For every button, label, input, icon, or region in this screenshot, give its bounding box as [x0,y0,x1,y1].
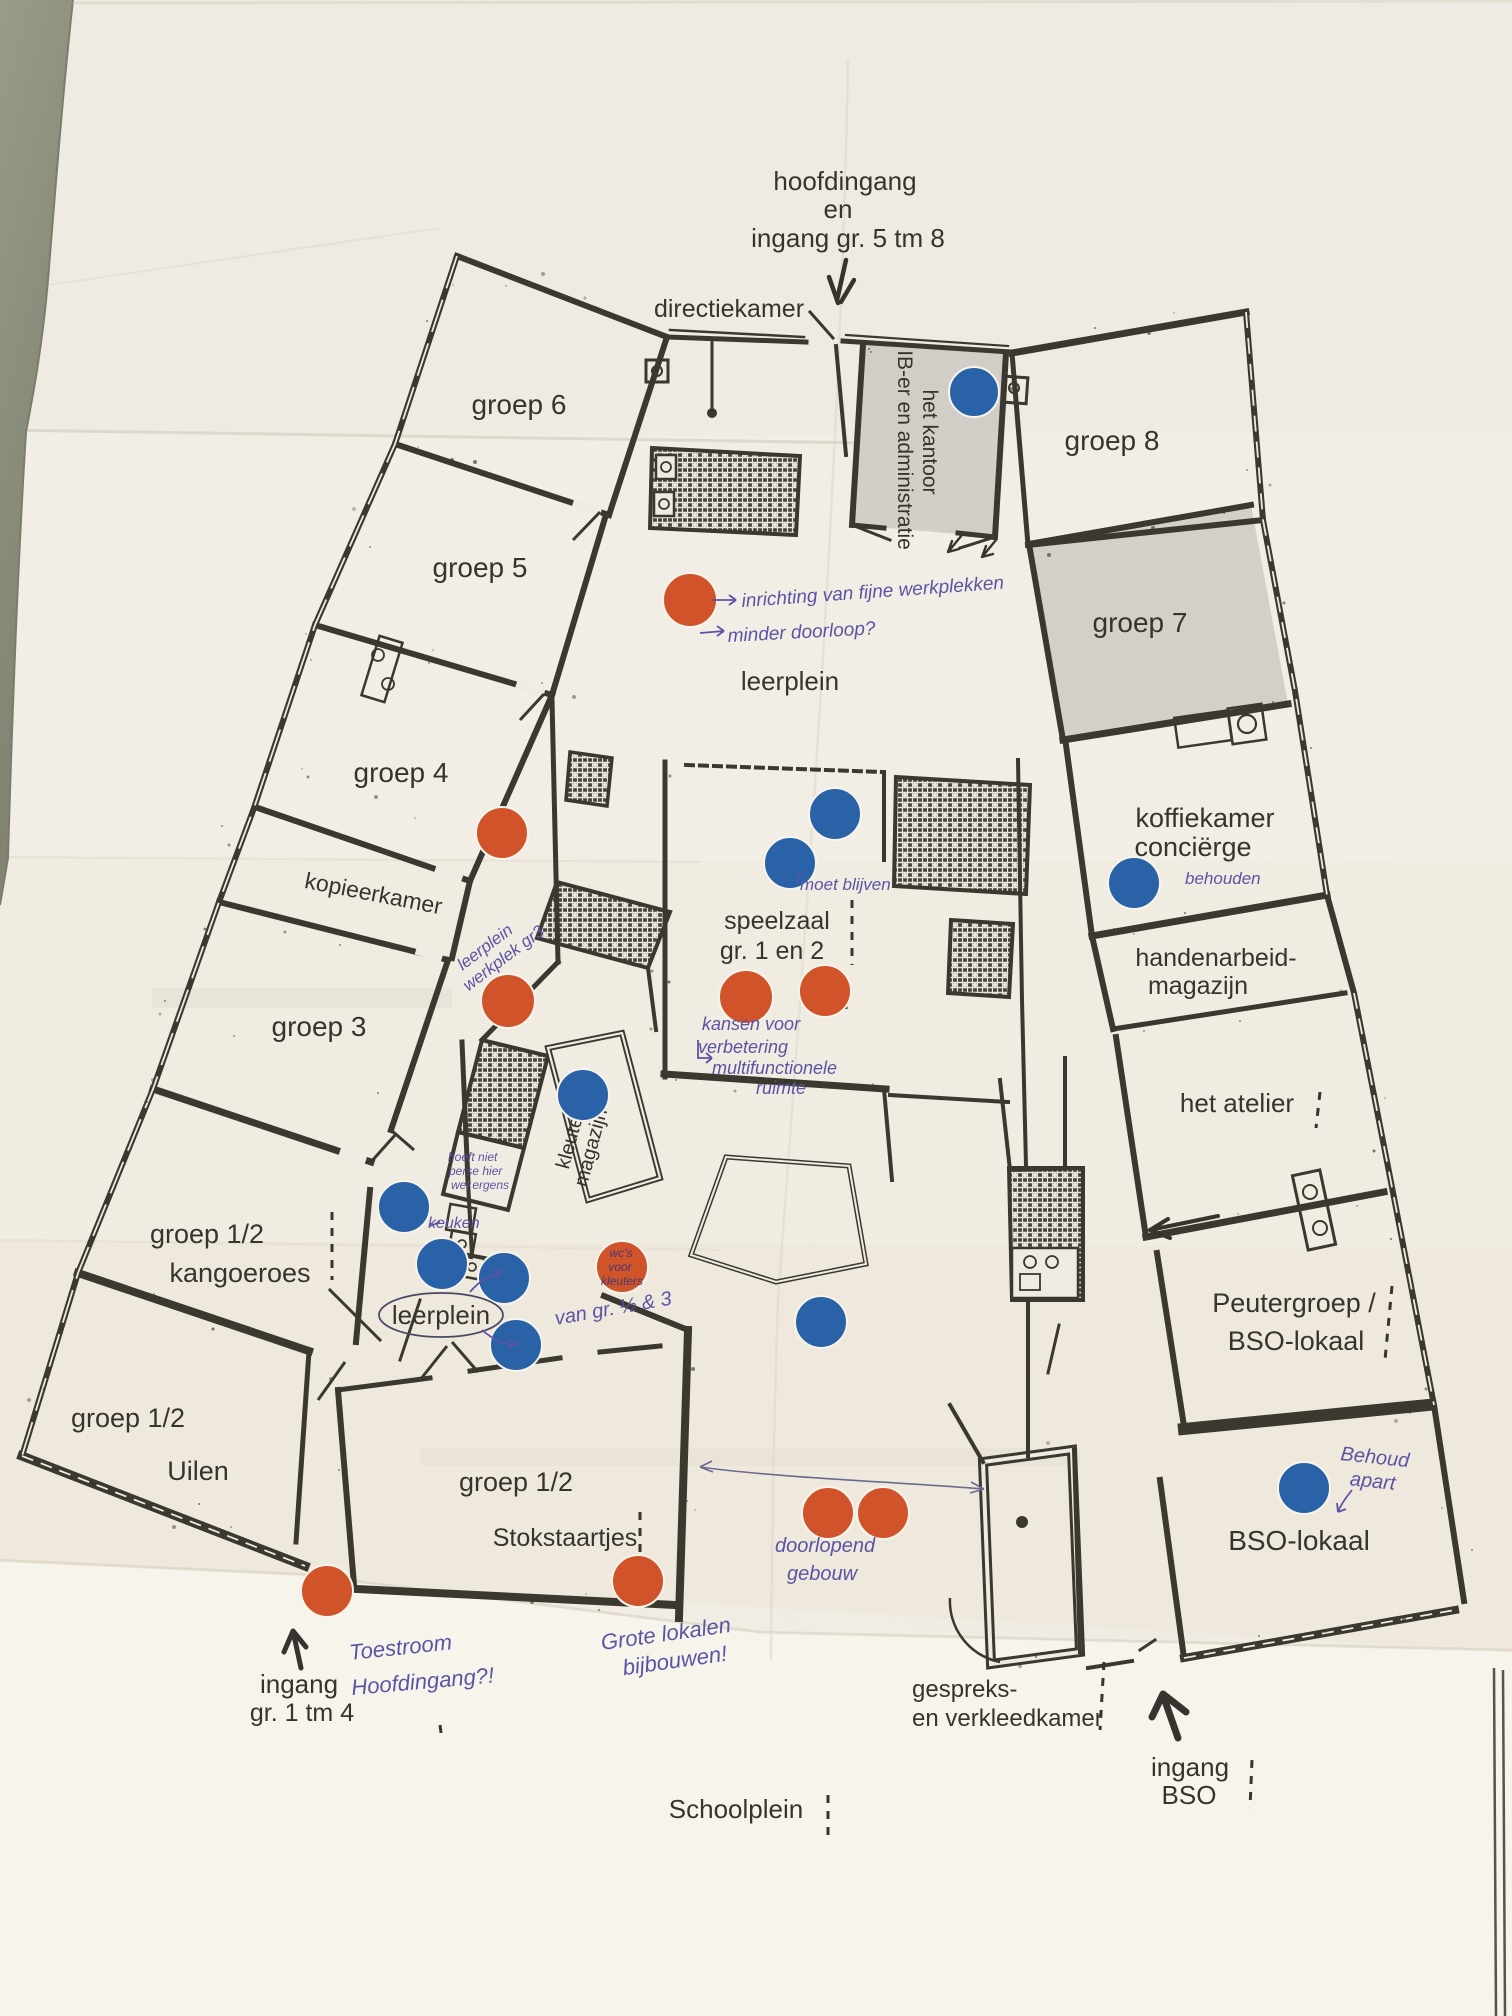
svg-text:verbetering: verbetering [698,1037,788,1057]
svg-text:gr. 1 en 2: gr. 1 en 2 [720,937,824,965]
svg-text:groep 1/2: groep 1/2 [71,1403,185,1433]
svg-text:wc's: wc's [610,1246,633,1260]
svg-text:ruimte: ruimte [756,1078,806,1098]
svg-text:ingang gr. 5 tm 8: ingang gr. 5 tm 8 [751,223,945,253]
svg-text:handenarbeid-: handenarbeid- [1135,944,1296,972]
svg-text:Stokstaartjes: Stokstaartjes [493,1524,638,1552]
svg-text:het atelier: het atelier [1180,1088,1295,1118]
svg-text:BSO-lokaal: BSO-lokaal [1228,1525,1370,1556]
svg-text:doorlopend: doorlopend [775,1535,876,1557]
svg-text:multifunctionele: multifunctionele [712,1058,837,1078]
svg-text:Uilen: Uilen [167,1456,229,1486]
svg-text:IB-er en administratie: IB-er en administratie [893,350,916,550]
svg-text:groep 3: groep 3 [272,1011,367,1042]
svg-text:groep 4: groep 4 [354,757,449,788]
svg-text:groep 6: groep 6 [472,389,567,420]
svg-text:groep 5: groep 5 [433,552,528,583]
svg-text:leerplein: leerplein [392,1300,490,1330]
svg-text:groep 8: groep 8 [1065,425,1160,456]
svg-text:hoofdingang: hoofdingang [773,166,916,196]
svg-text:perse hier: perse hier [448,1164,503,1178]
svg-text:en: en [824,194,853,224]
svg-text:ingang: ingang [1151,1752,1229,1782]
svg-text:magazijn: magazijn [1148,972,1248,1000]
svg-text:groep 1/2: groep 1/2 [150,1219,264,1249]
svg-text:gebouw: gebouw [787,1563,859,1585]
svg-text:hoeft niet: hoeft niet [448,1150,498,1164]
svg-text:BSO-lokaal: BSO-lokaal [1228,1326,1365,1356]
svg-text:Peutergroep /: Peutergroep / [1212,1288,1376,1318]
svg-text:Schoolplein: Schoolplein [669,1794,803,1824]
svg-text:groep 7: groep 7 [1093,607,1188,638]
svg-text:gr. 1 tm 4: gr. 1 tm 4 [250,1699,354,1727]
svg-text:leerplein: leerplein [741,666,839,696]
svg-text:en verkleedkamer: en verkleedkamer [912,1705,1103,1732]
svg-text:kleuters: kleuters [601,1274,643,1288]
svg-text:speelzaal: speelzaal [724,907,830,935]
svg-text:groep 1/2: groep 1/2 [459,1467,573,1497]
svg-text:kansen voor: kansen voor [702,1014,801,1034]
svg-text:conciërge: conciërge [1134,832,1251,862]
svg-text:kangoeroes: kangoeroes [169,1258,310,1288]
svg-text:ingang: ingang [260,1669,338,1699]
svg-text:BSO: BSO [1162,1780,1217,1810]
svg-text:gespreks-: gespreks- [912,1676,1017,1703]
svg-text:wel ergens: wel ergens [451,1178,509,1192]
svg-text:moet blijven: moet blijven [800,875,891,894]
svg-text:het kantoor: het kantoor [918,389,941,494]
svg-text:behouden: behouden [1185,869,1261,888]
svg-text:voor: voor [608,1260,632,1274]
svg-text:koffiekamer: koffiekamer [1135,803,1274,833]
svg-text:directiekamer: directiekamer [654,295,804,323]
